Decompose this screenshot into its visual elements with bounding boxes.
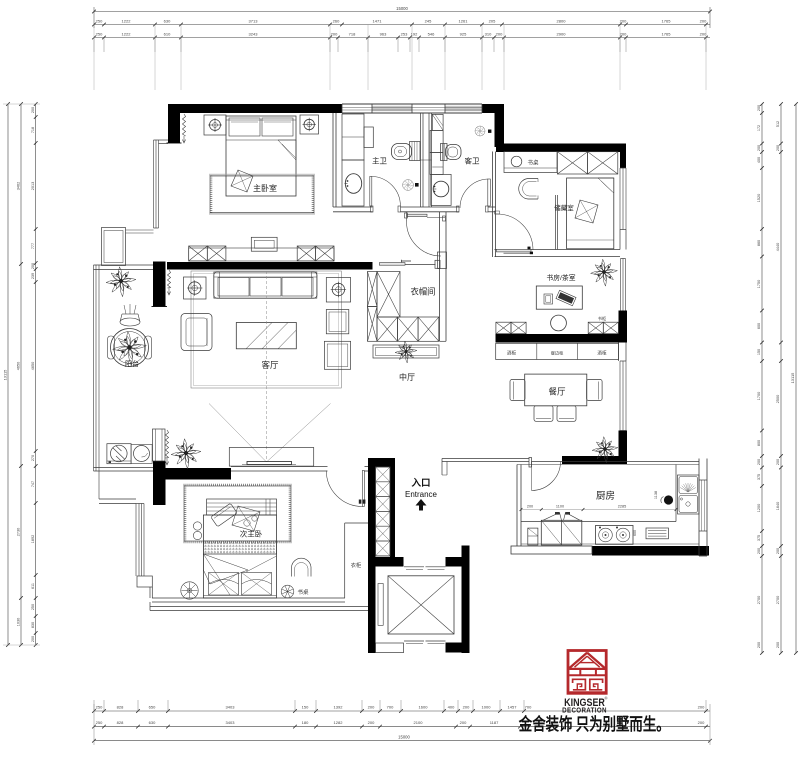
svg-text:200: 200 (460, 720, 467, 725)
svg-text:1282: 1282 (334, 720, 344, 725)
svg-text:200: 200 (757, 642, 761, 648)
svg-text:200: 200 (700, 19, 707, 24)
svg-text:963: 963 (380, 32, 387, 37)
svg-text:400: 400 (448, 705, 455, 710)
svg-text:375: 375 (757, 535, 761, 541)
svg-text:250: 250 (96, 32, 103, 37)
svg-text:150: 150 (302, 705, 309, 710)
svg-text:172: 172 (757, 125, 761, 131)
svg-text:2100: 2100 (414, 720, 424, 725)
svg-text:2700: 2700 (776, 596, 780, 604)
svg-text:777: 777 (31, 243, 35, 249)
svg-text:3403: 3403 (226, 705, 236, 710)
svg-text:2730: 2730 (17, 528, 21, 536)
svg-text:1138: 1138 (654, 491, 658, 499)
svg-text:15000: 15000 (396, 6, 408, 11)
svg-text:200: 200 (698, 705, 705, 710)
svg-text:250: 250 (96, 705, 103, 710)
svg-text:800: 800 (757, 440, 761, 446)
svg-text:1200: 1200 (757, 504, 761, 512)
svg-text:828: 828 (117, 720, 124, 725)
svg-text:书房/茶室: 书房/茶室 (546, 273, 575, 282)
svg-text:13115: 13115 (790, 372, 795, 384)
svg-text:700: 700 (387, 705, 394, 710)
svg-text:250: 250 (96, 720, 103, 725)
svg-text:4440: 4440 (776, 243, 780, 251)
svg-text:205: 205 (489, 19, 496, 24)
svg-text:1765: 1765 (662, 19, 672, 24)
svg-text:1750: 1750 (757, 280, 761, 288)
svg-text:1600: 1600 (419, 705, 429, 710)
svg-text:1100: 1100 (556, 505, 564, 509)
svg-text:200: 200 (776, 145, 780, 151)
svg-text:酒柜: 酒柜 (507, 350, 517, 357)
svg-text:储藏室: 储藏室 (554, 203, 574, 212)
svg-text:餐边柜: 餐边柜 (551, 350, 564, 357)
svg-text:1700: 1700 (757, 392, 761, 400)
svg-text:2500: 2500 (776, 395, 780, 403)
svg-text:1392: 1392 (334, 705, 344, 710)
svg-text:830: 830 (31, 622, 35, 628)
svg-text:200: 200 (757, 548, 761, 554)
svg-text:阳台: 阳台 (125, 359, 139, 368)
svg-text:260: 260 (333, 19, 340, 24)
svg-text:1222: 1222 (122, 19, 132, 24)
svg-text:餐厅: 餐厅 (548, 387, 566, 397)
svg-text:200: 200 (331, 32, 338, 37)
svg-text:次主卧: 次主卧 (240, 529, 263, 539)
svg-text:600: 600 (757, 323, 761, 329)
svg-text:书桌: 书桌 (527, 159, 539, 167)
svg-text:1000: 1000 (482, 705, 492, 710)
svg-text:150: 150 (757, 349, 761, 355)
svg-text:375: 375 (757, 474, 761, 480)
svg-text:酒柜: 酒柜 (597, 350, 607, 357)
svg-text:3462: 3462 (17, 182, 21, 190)
svg-text:200: 200 (31, 107, 35, 113)
svg-text:200: 200 (757, 145, 761, 151)
svg-text:2285: 2285 (618, 505, 626, 509)
svg-text:13115: 13115 (3, 369, 8, 381)
svg-text:3403: 3403 (226, 720, 236, 725)
svg-text:金舍装饰 只为别墅而生。: 金舍装饰 只为别墅而生。 (518, 714, 670, 734)
svg-text:200: 200 (527, 505, 533, 509)
svg-text:200: 200 (496, 32, 503, 37)
svg-text:Entrance: Entrance (405, 490, 438, 499)
svg-text:®: ® (605, 696, 608, 701)
svg-text:200: 200 (620, 32, 627, 37)
svg-text:衣帽间: 衣帽间 (411, 287, 436, 297)
svg-text:650: 650 (149, 705, 156, 710)
svg-text:611: 611 (31, 583, 35, 589)
svg-text:200: 200 (31, 263, 35, 269)
svg-text:1640: 1640 (776, 502, 780, 510)
svg-text:书桌: 书桌 (297, 588, 309, 596)
svg-text:250: 250 (96, 19, 103, 24)
svg-text:239: 239 (31, 273, 35, 279)
svg-text:200: 200 (368, 720, 375, 725)
svg-text:1222: 1222 (122, 32, 132, 37)
svg-text:1520: 1520 (757, 194, 761, 202)
svg-text:400: 400 (757, 157, 761, 163)
svg-text:1471: 1471 (373, 19, 383, 24)
svg-text:2900: 2900 (557, 32, 567, 37)
svg-text:主卧室: 主卧室 (253, 183, 277, 193)
svg-text:747: 747 (31, 481, 35, 487)
svg-text:1892: 1892 (31, 535, 35, 543)
svg-text:200: 200 (776, 459, 780, 465)
svg-text:书柜: 书柜 (598, 315, 606, 322)
svg-text:2800: 2800 (557, 19, 567, 24)
svg-text:828: 828 (117, 705, 124, 710)
svg-text:1457: 1457 (508, 705, 518, 710)
svg-text:3243: 3243 (249, 32, 259, 37)
svg-text:200: 200 (776, 548, 780, 554)
svg-text:200: 200 (757, 105, 761, 111)
svg-text:4650: 4650 (17, 362, 21, 370)
svg-text:860: 860 (757, 240, 761, 246)
svg-text:200: 200 (463, 705, 470, 710)
svg-text:512: 512 (776, 121, 780, 127)
svg-text:DECORATION: DECORATION (562, 707, 607, 715)
svg-text:718: 718 (31, 127, 35, 133)
svg-text:718: 718 (349, 32, 356, 37)
svg-text:270: 270 (31, 455, 35, 461)
svg-text:200: 200 (776, 642, 780, 648)
svg-text:衣柜: 衣柜 (351, 561, 361, 569)
svg-text:700: 700 (525, 705, 532, 710)
svg-text:200: 200 (620, 19, 627, 24)
svg-text:310: 310 (485, 32, 492, 37)
svg-text:厨房: 厨房 (596, 490, 615, 502)
svg-text:600: 600 (633, 530, 637, 536)
svg-text:200: 200 (368, 705, 375, 710)
svg-text:入口: 入口 (410, 478, 430, 489)
svg-text:中厅: 中厅 (399, 372, 415, 382)
svg-text:200: 200 (757, 459, 761, 465)
svg-text:200: 200 (698, 720, 705, 725)
svg-text:1765: 1765 (662, 32, 672, 37)
svg-text:630: 630 (149, 720, 156, 725)
svg-text:925: 925 (460, 32, 467, 37)
svg-text:250: 250 (31, 604, 35, 610)
svg-text:2700: 2700 (757, 596, 761, 604)
svg-text:2013: 2013 (31, 182, 35, 190)
svg-text:192: 192 (411, 32, 418, 37)
svg-text:4650: 4650 (31, 362, 35, 370)
svg-text:1030: 1030 (17, 618, 21, 626)
svg-text:180: 180 (302, 720, 309, 725)
svg-text:1187: 1187 (490, 720, 499, 725)
svg-text:1261: 1261 (459, 19, 469, 24)
svg-text:546: 546 (428, 32, 435, 37)
svg-text:630: 630 (164, 19, 171, 24)
svg-text:客卫: 客卫 (465, 156, 480, 166)
svg-text:253: 253 (401, 32, 408, 37)
svg-text:610: 610 (164, 32, 171, 37)
svg-text:3713: 3713 (249, 19, 259, 24)
svg-text:200: 200 (31, 636, 35, 642)
svg-text:客厅: 客厅 (261, 360, 279, 370)
svg-text:245: 245 (425, 19, 432, 24)
svg-text:15000: 15000 (398, 735, 410, 740)
svg-text:主卫: 主卫 (372, 156, 387, 166)
